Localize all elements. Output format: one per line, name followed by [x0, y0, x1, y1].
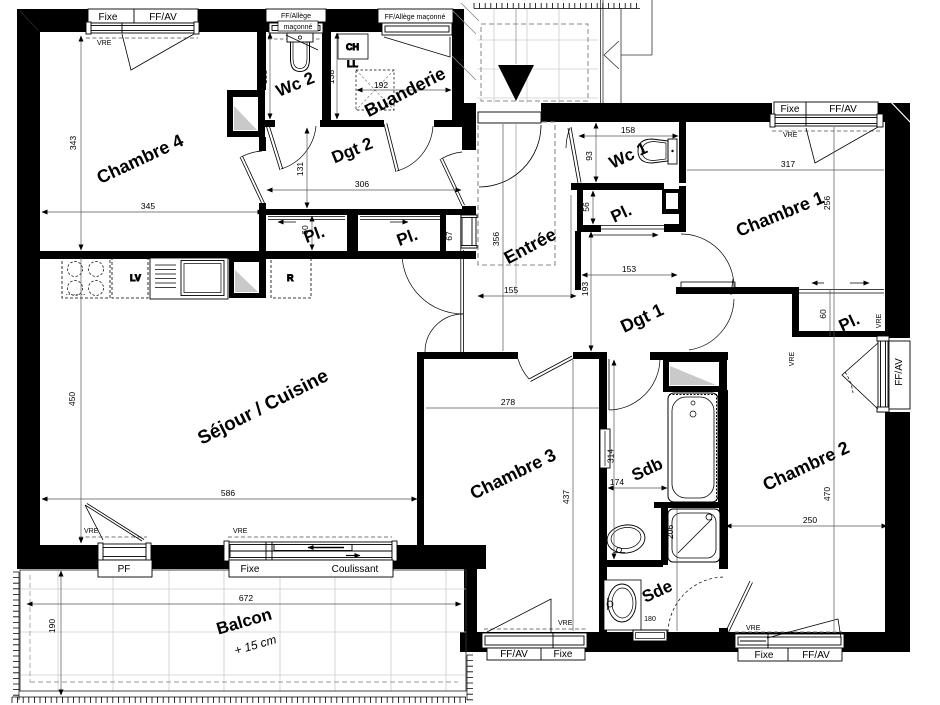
- svg-text:VRE: VRE: [789, 351, 796, 366]
- svg-text:R: R: [287, 273, 294, 283]
- svg-text:FF/Allège maçonné: FF/Allège maçonné: [385, 14, 446, 21]
- svg-text:250: 250: [803, 515, 817, 525]
- svg-text:153: 153: [622, 264, 636, 274]
- svg-text:FF/Allège: FF/Allège: [281, 13, 311, 20]
- svg-text:158: 158: [621, 125, 635, 135]
- svg-text:Fixe: Fixe: [99, 12, 118, 23]
- svg-text:Fixe: Fixe: [755, 650, 774, 661]
- svg-text:FF/AV: FF/AV: [894, 358, 905, 386]
- svg-text:450: 450: [67, 392, 77, 406]
- svg-text:356: 356: [491, 232, 501, 246]
- svg-text:FF/AV: FF/AV: [149, 12, 177, 23]
- svg-text:174: 174: [610, 477, 624, 487]
- svg-text:470: 470: [822, 487, 832, 501]
- svg-text:180: 180: [644, 616, 656, 623]
- svg-text:FF/AV: FF/AV: [500, 649, 528, 660]
- svg-text:VRE: VRE: [876, 313, 883, 328]
- svg-text:314: 314: [606, 449, 616, 463]
- svg-text:93: 93: [584, 151, 594, 161]
- svg-text:Coulissant: Coulissant: [332, 564, 379, 575]
- svg-text:437: 437: [561, 490, 571, 504]
- svg-text:343: 343: [68, 136, 78, 150]
- svg-text:306: 306: [355, 179, 369, 189]
- svg-text:FF/AV: FF/AV: [829, 104, 857, 115]
- svg-text:56: 56: [581, 202, 591, 212]
- svg-text:VRE: VRE: [97, 40, 112, 47]
- svg-text:138: 138: [259, 70, 269, 84]
- svg-text:Fixe: Fixe: [554, 649, 573, 660]
- svg-text:Fixe: Fixe: [781, 104, 800, 115]
- svg-text:LL: LL: [347, 59, 358, 69]
- svg-text:CH: CH: [346, 42, 359, 52]
- svg-text:155: 155: [504, 285, 518, 295]
- svg-text:LV: LV: [130, 273, 141, 283]
- svg-text:317: 317: [781, 159, 795, 169]
- svg-text:586: 586: [221, 488, 235, 498]
- svg-text:VRE: VRE: [746, 625, 761, 632]
- svg-text:193: 193: [580, 282, 590, 296]
- svg-text:FF/AV: FF/AV: [802, 650, 830, 661]
- svg-text:138: 138: [326, 70, 336, 84]
- svg-text:Fixe: Fixe: [241, 564, 260, 575]
- svg-text:278: 278: [501, 397, 515, 407]
- svg-text:131: 131: [295, 162, 305, 176]
- svg-text:VRE: VRE: [783, 132, 798, 139]
- svg-text:VRE: VRE: [558, 620, 573, 627]
- svg-text:maçonné: maçonné: [284, 24, 313, 31]
- svg-text:206: 206: [665, 525, 675, 539]
- svg-text:PF: PF: [118, 564, 131, 575]
- svg-text:60: 60: [818, 309, 828, 319]
- svg-text:345: 345: [141, 201, 155, 211]
- svg-text:672: 672: [239, 593, 253, 603]
- svg-text:190: 190: [47, 619, 57, 633]
- svg-text:192: 192: [374, 80, 388, 90]
- svg-text:VRE: VRE: [233, 528, 248, 535]
- svg-text:67: 67: [444, 231, 454, 241]
- svg-text:VRE: VRE: [84, 528, 99, 535]
